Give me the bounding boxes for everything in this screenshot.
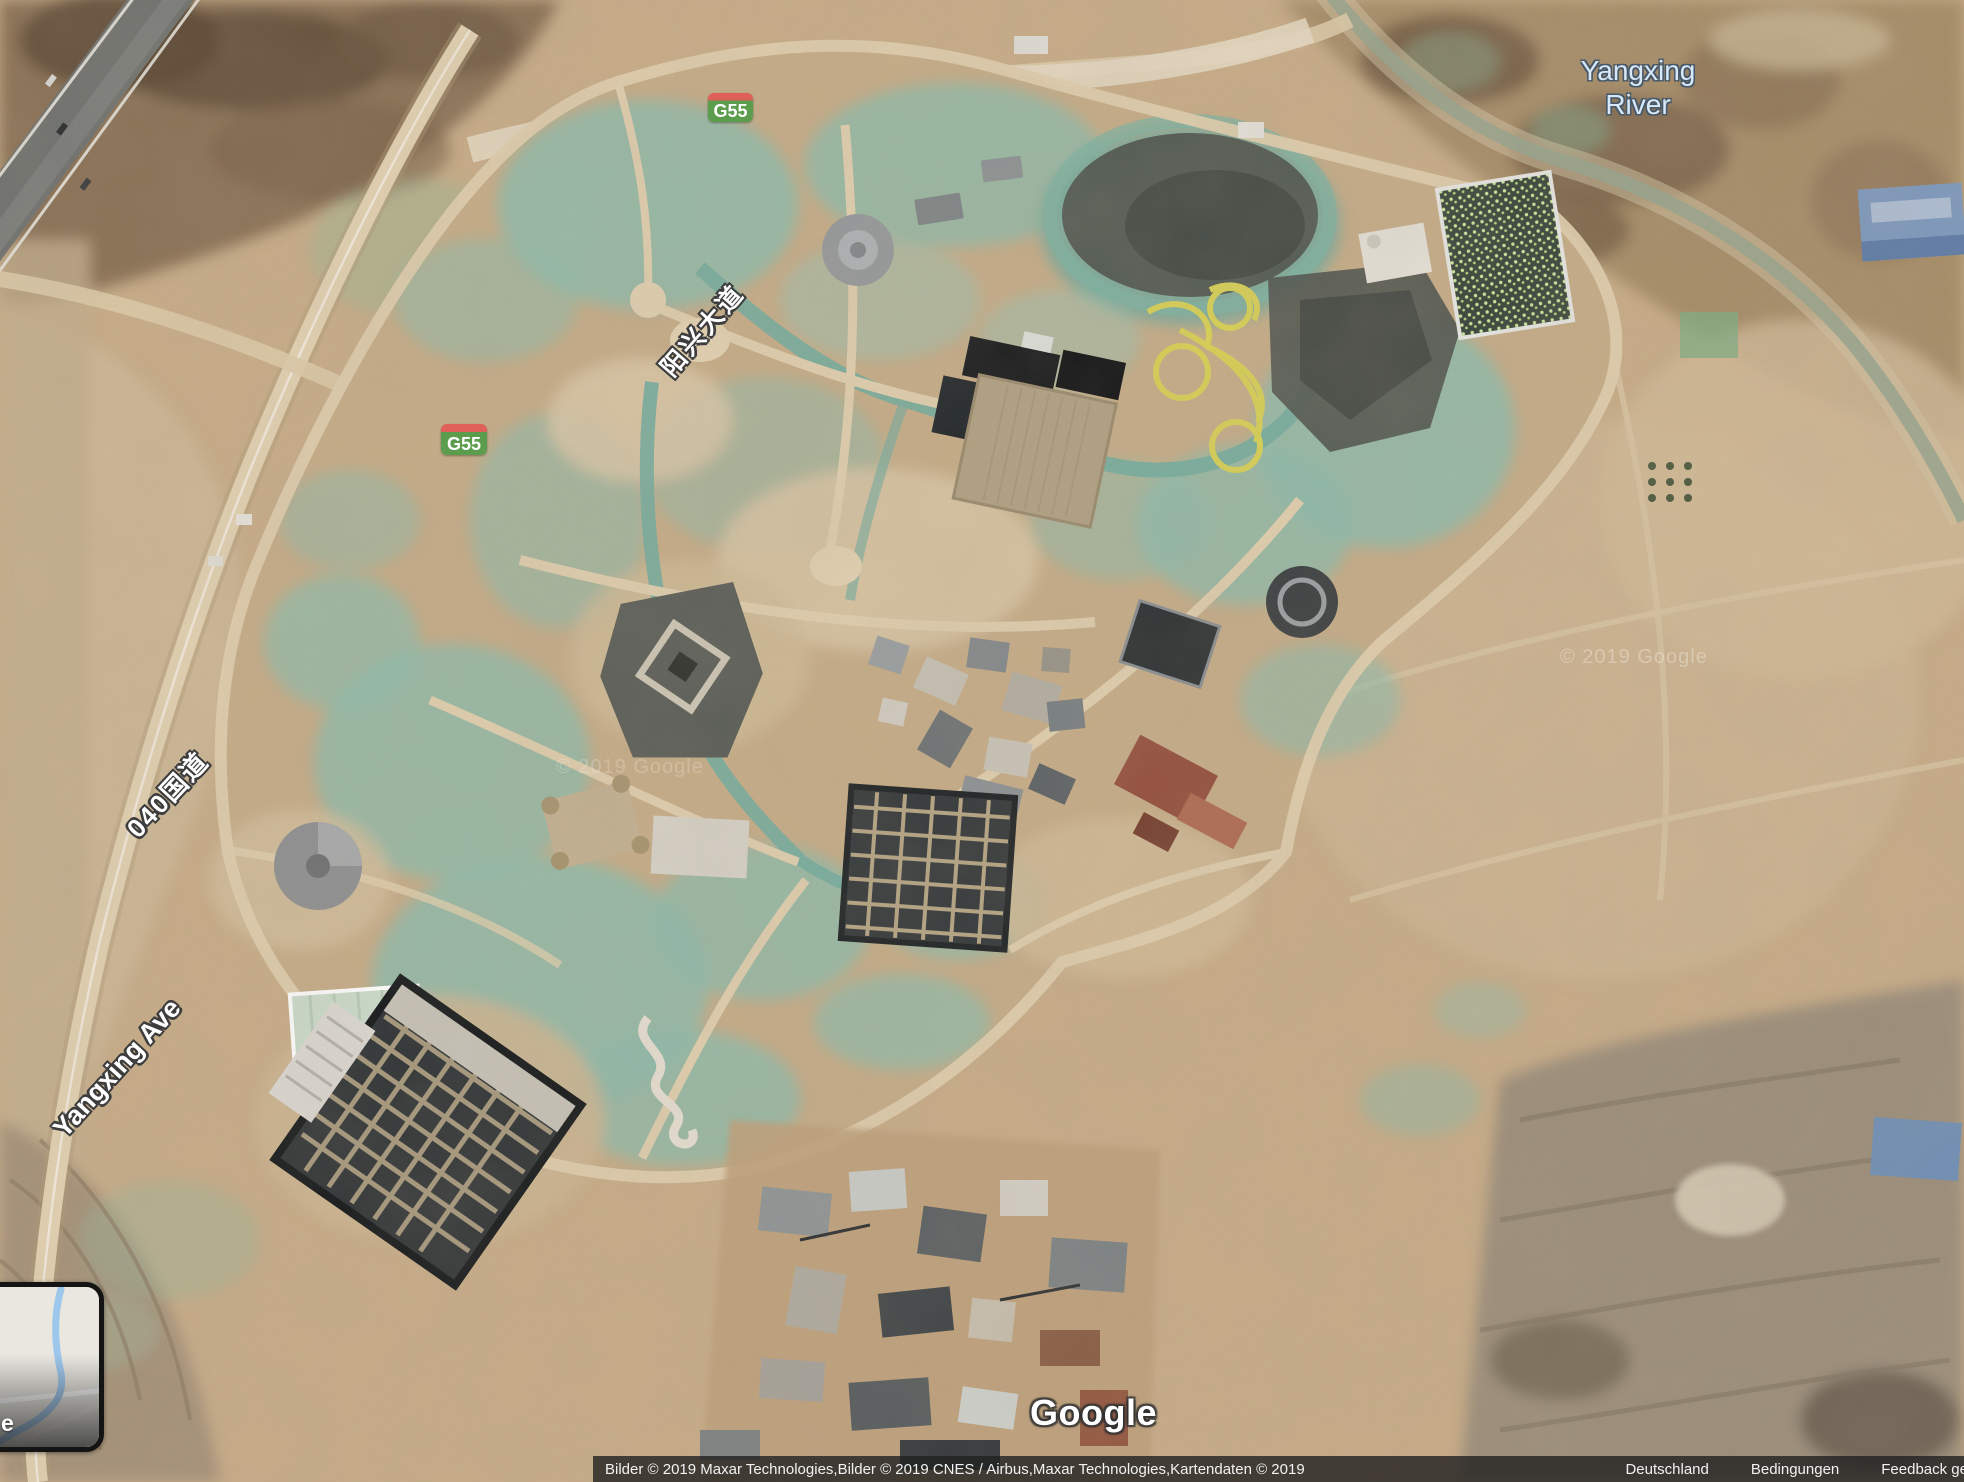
- highway-shield-label: G55: [447, 434, 481, 455]
- feedback-link[interactable]: Feedback ge: [1881, 1461, 1964, 1478]
- highway-shield-label: G55: [713, 101, 747, 122]
- imagery-credit: Bilder © 2019 Maxar Technologies,Bilder …: [605, 1461, 1305, 1478]
- terms-link[interactable]: Bedingungen: [1751, 1461, 1839, 1478]
- highway-shield-g55-west: G55: [441, 424, 487, 455]
- attribution-bar: Bilder © 2019 Maxar Technologies,Bilder …: [593, 1456, 1964, 1482]
- map-viewport[interactable]: Yangxing River 阳兴大道 040国道 Yangxing Ave G…: [0, 0, 1964, 1482]
- map-type-label: e: [1, 1410, 14, 1437]
- map-thumbnail-shade: [0, 1287, 99, 1447]
- map-type-toggle[interactable]: e: [0, 1282, 104, 1452]
- region-label: Deutschland: [1625, 1461, 1708, 1478]
- satellite-imagery: [0, 0, 1964, 1482]
- google-logo[interactable]: Google: [1030, 1392, 1157, 1434]
- highway-shield-g55-top: G55: [708, 93, 753, 122]
